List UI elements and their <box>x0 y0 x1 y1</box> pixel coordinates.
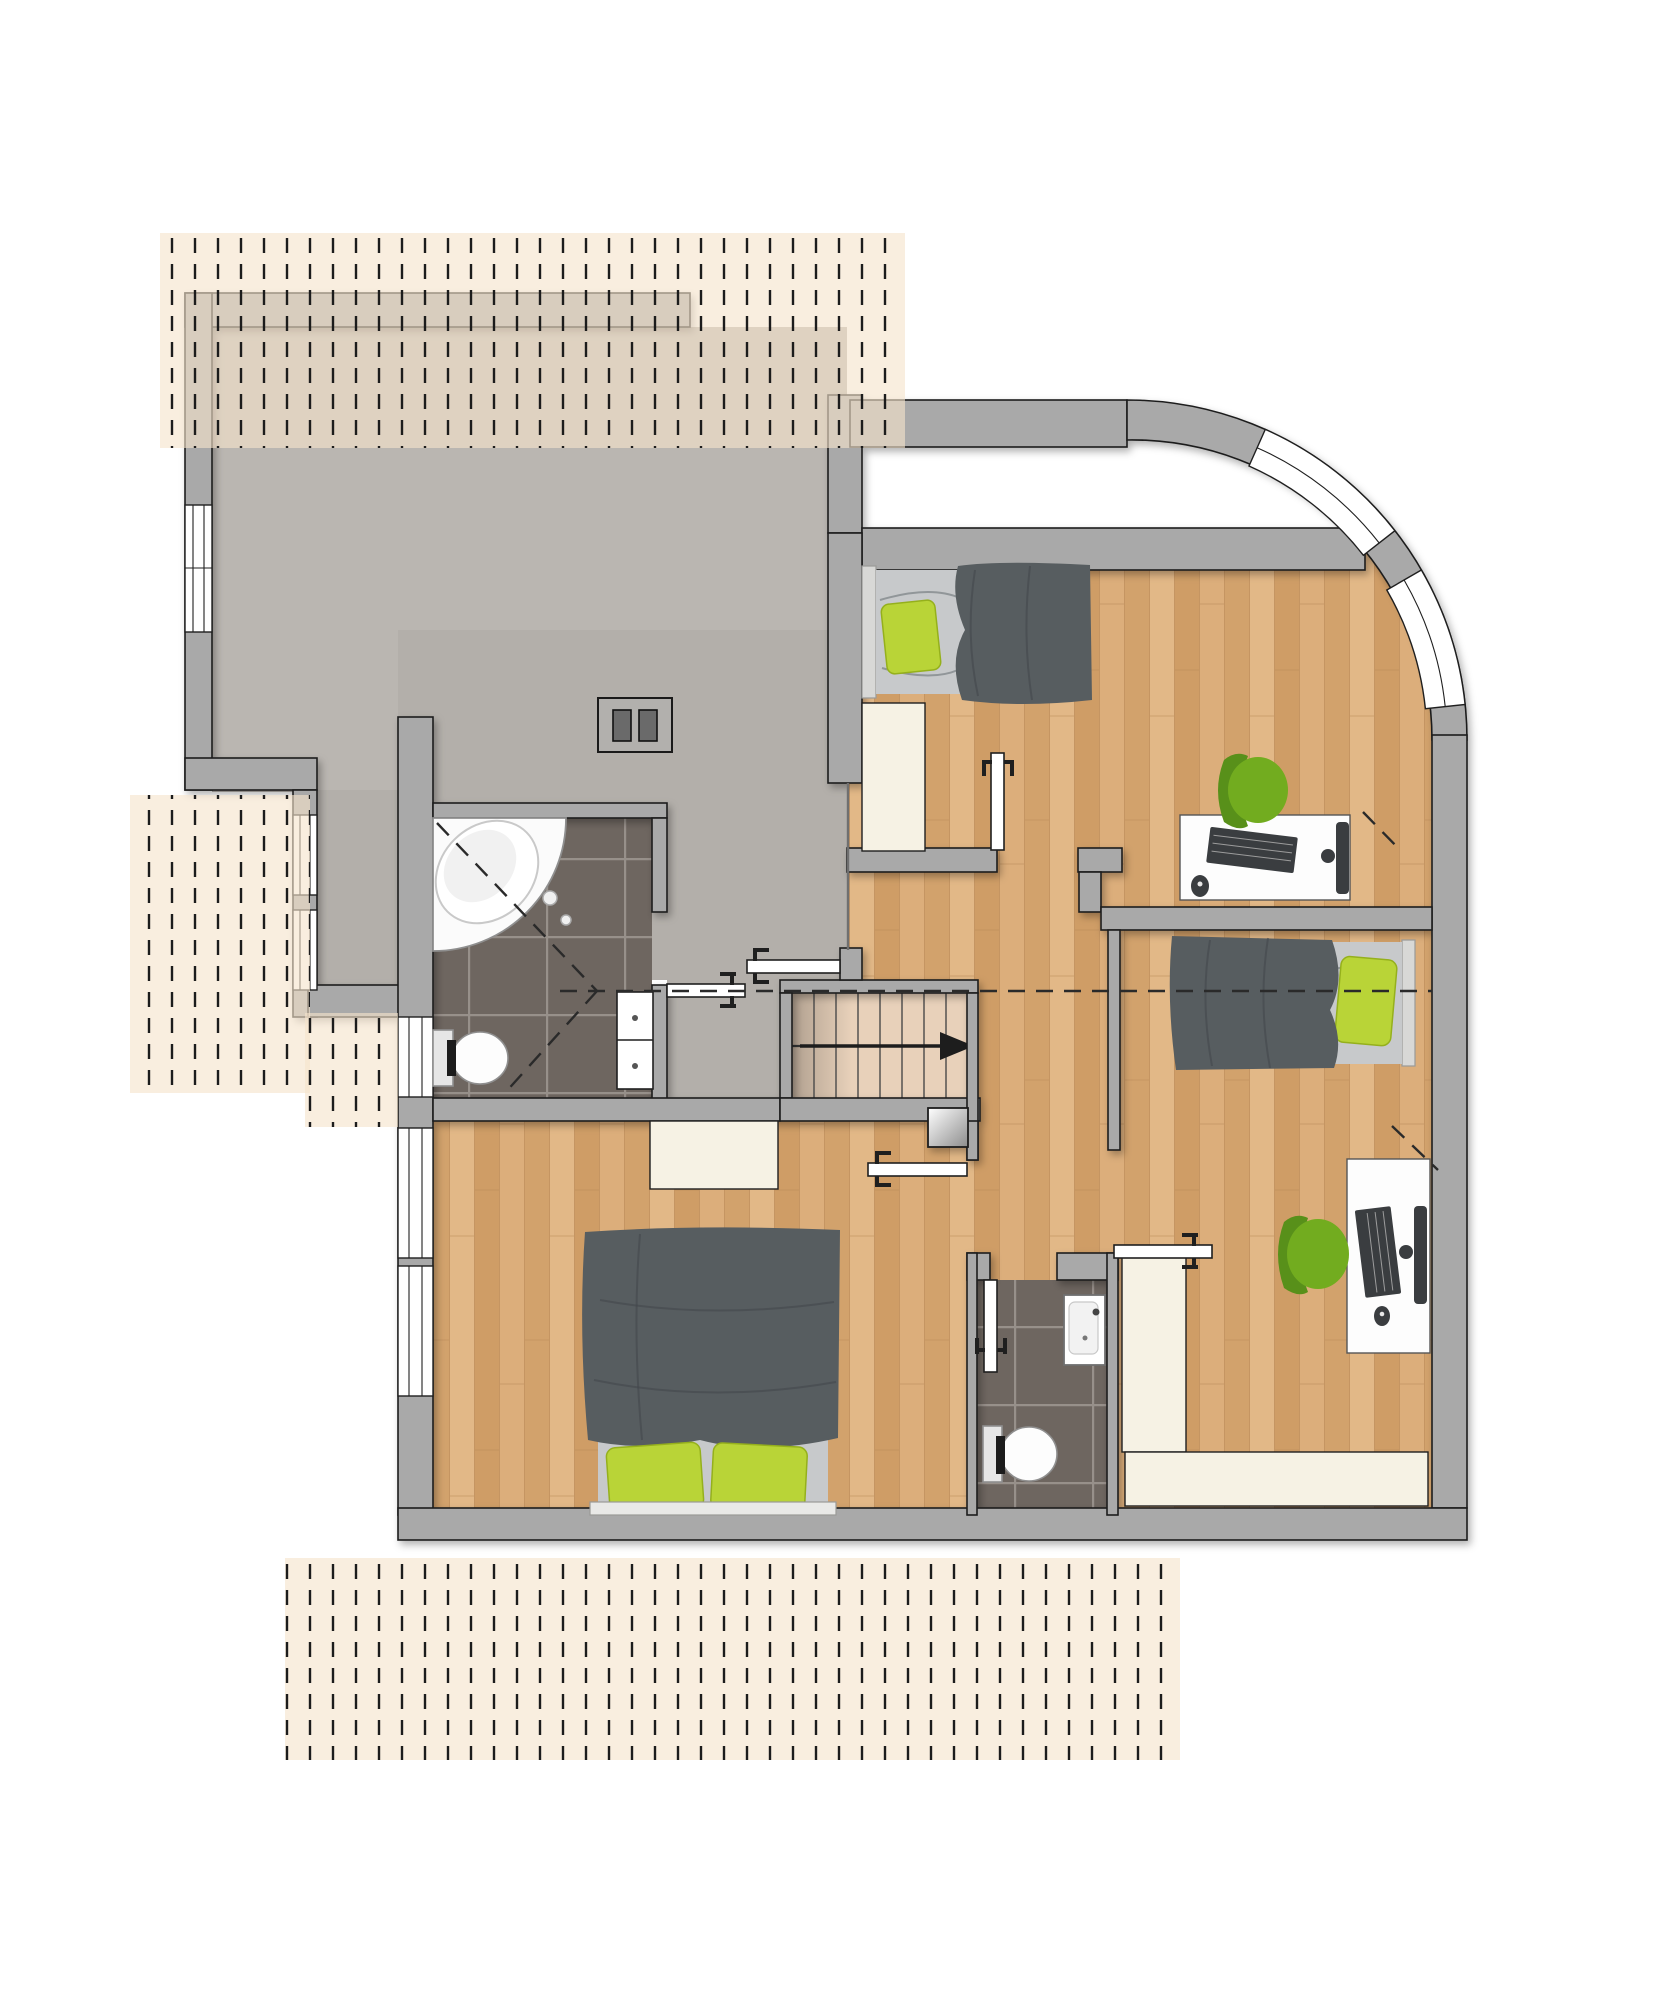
sideboard-south <box>1125 1452 1428 1506</box>
floor-plan-page <box>0 0 1656 2012</box>
monitor-stand-north <box>1321 849 1335 863</box>
bed2-pillow <box>1334 956 1397 1047</box>
wall-corridor-east <box>1108 930 1120 1150</box>
wardrobe-bedroom-east <box>1122 1248 1186 1452</box>
bathroom-shelf <box>617 992 653 1089</box>
chimney <box>598 698 672 752</box>
chimney-flue-2 <box>639 710 657 741</box>
exterior-wall-south <box>398 1508 1467 1540</box>
roof-shaft <box>928 1108 968 1147</box>
monitor-north <box>1336 822 1349 894</box>
bed-single-east <box>1170 936 1415 1070</box>
wall-terrace-southwest <box>185 758 317 790</box>
tub-drain <box>543 891 557 905</box>
chimney-flue-1 <box>613 710 631 741</box>
wall-bedroom-north-west <box>828 533 862 783</box>
bed2-blanket <box>1170 936 1339 1070</box>
bed3-headboard <box>590 1502 836 1515</box>
exterior-wall-east <box>1432 735 1467 1508</box>
floor-plan-drawing <box>0 0 1656 2012</box>
wall-wc-west <box>967 1253 977 1515</box>
toilet-wc <box>983 1426 1057 1482</box>
monitor-stand-east <box>1399 1245 1413 1259</box>
wall-bedroom-sw-north <box>433 1098 780 1121</box>
knee-wall-bedroom-north <box>862 528 1365 570</box>
bedroom-sw-window-2 <box>398 1266 433 1396</box>
bathroom-window <box>398 1017 433 1097</box>
wall-bedroom-north-south-b <box>1078 848 1122 872</box>
monitor-east <box>1414 1206 1427 1304</box>
wall-bathroom-north <box>433 803 667 818</box>
toilet-bathroom <box>433 1030 508 1086</box>
washbasin-wc <box>1064 1295 1105 1365</box>
wardrobe-bedroom-north <box>862 703 925 851</box>
stair-wall-west <box>780 993 792 1098</box>
hatch-south <box>285 1558 1180 1760</box>
wall-wc-east <box>1107 1253 1118 1515</box>
staircase <box>792 993 974 1098</box>
wall-bathroom-east-a <box>652 818 667 912</box>
faucet <box>1093 1309 1100 1316</box>
tub-overflow <box>561 915 571 925</box>
terrace-floor-lower-strip <box>317 790 398 990</box>
bed1-headboard <box>862 566 876 698</box>
wall-bedroom-east-north <box>1101 907 1432 930</box>
desk-east <box>1347 1159 1430 1353</box>
wall-niche <box>308 985 400 1017</box>
bedroom-sw-window-1 <box>398 1128 433 1258</box>
bed2-headboard <box>1402 940 1415 1066</box>
wall-L-divider <box>1079 872 1101 912</box>
bed1-pillow <box>880 599 941 674</box>
closet-bedroom-southwest <box>650 1121 778 1189</box>
desk-north <box>1180 815 1350 900</box>
terrace-parapet-window <box>185 505 212 632</box>
bed-double-southwest <box>582 1227 840 1515</box>
bed-single-north <box>862 563 1092 704</box>
hatch-north <box>160 233 905 448</box>
wall-landing-stub <box>840 948 862 980</box>
bed3-blanket <box>582 1227 840 1447</box>
